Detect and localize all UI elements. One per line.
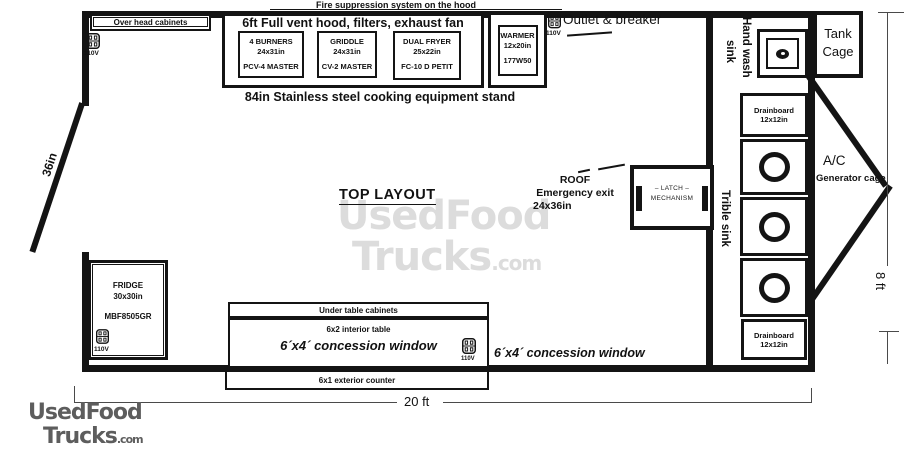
watermark-corner-line1: UsedFood xyxy=(28,400,142,425)
drain-icon xyxy=(759,212,790,242)
roof-exit-line3: 24x36in xyxy=(533,200,617,213)
outlet-110v-icon xyxy=(86,33,100,49)
interior-table-label: 6x2 interior table xyxy=(230,325,487,334)
latch-bar-left xyxy=(636,186,642,211)
tank-cage-box: Tank Cage xyxy=(813,11,863,78)
watermark-corner-suffix: .com xyxy=(117,433,143,446)
roof-exit-line1: ROOF xyxy=(533,174,617,187)
exterior-counter-box: 6x1 exterior counter xyxy=(225,370,489,390)
exterior-counter-label: 6x1 exterior counter xyxy=(319,376,395,385)
overhead-cabinets: Over head cabinets xyxy=(90,14,211,31)
roof-exit-note: ROOF Emergency exit 24x36in xyxy=(533,174,617,213)
under-table-cabinets: Under table cabinets xyxy=(228,302,489,318)
drainboard-size: 12x12in xyxy=(760,340,788,349)
breaker-leader-line xyxy=(567,31,612,36)
width-dim-tick-right xyxy=(811,388,812,403)
latch-bar-right xyxy=(702,186,708,211)
concession-window-exterior-label: 6´x4´ concession window xyxy=(494,346,645,360)
drainboard-name: Drainboard xyxy=(754,106,794,115)
watermark-corner-trucks: Trucks xyxy=(43,424,117,449)
latch-label-line1: – LATCH – xyxy=(634,184,710,194)
height-dim-line-upper xyxy=(887,13,888,266)
equipment-model: CV-2 MASTER xyxy=(319,62,375,72)
height-dim-tick-top xyxy=(878,12,904,13)
watermark-corner-line2: Trucks.com xyxy=(43,424,143,449)
tank-cage-label: Tank Cage xyxy=(817,15,859,60)
equipment-model: FC-10 D PETIT xyxy=(395,62,459,72)
watermark-center-trucks: Trucks xyxy=(352,234,491,280)
vent-hood-box: 6ft Full vent hood, filters, exhaust fan… xyxy=(222,13,484,88)
height-dim-line-lower xyxy=(887,332,888,364)
under-table-cabinets-label: Under table cabinets xyxy=(319,306,398,315)
height-dim-tick-bottom xyxy=(879,331,899,332)
fridge-model: MBF8505GR xyxy=(91,311,165,322)
roof-exit-leader-dash-2 xyxy=(598,164,625,171)
height-dim-label: 8 ft xyxy=(873,272,888,290)
sink-basin-2 xyxy=(740,197,808,256)
warmer-model: 177W50 xyxy=(500,56,536,66)
width-dim-line-right xyxy=(443,402,812,403)
triple-sink-label: Trible sink xyxy=(719,190,731,247)
equipment-griddle: GRIDDLE 24x31in CV-2 MASTER xyxy=(317,31,377,78)
interior-table-box: 6x2 interior table 6´x4´ concession wind… xyxy=(228,318,489,368)
equipment-model: PCV-4 MASTER xyxy=(240,62,302,72)
warmer-box: WARMER 12x20in 177W50 xyxy=(488,12,547,88)
page-title: TOP LAYOUT xyxy=(339,187,436,205)
fridge-name: FRIDGE xyxy=(91,280,165,291)
fridge-outlet-icon xyxy=(96,329,109,344)
wall-door-diagonal xyxy=(29,102,85,253)
fire-suppression-leader-line xyxy=(270,9,562,10)
equipment-name: 4 BURNERS xyxy=(249,37,292,46)
drainboard-bottom-box: Drainboard 12x12in xyxy=(741,319,807,360)
roof-hatch-box: – LATCH – MECHANISM xyxy=(630,165,714,230)
width-dim-label: 20 ft xyxy=(404,394,429,409)
drainboard-name: Drainboard xyxy=(754,331,794,340)
sink-basin-3 xyxy=(740,258,808,317)
concession-window-label: 6´x4´ concession window xyxy=(230,338,487,353)
floor-plan-canvas: UsedFood Trucks.com Fire suppression sys… xyxy=(0,0,908,470)
table-voltage-label: 110V xyxy=(461,356,475,362)
equipment-name: GRIDDLE xyxy=(330,37,364,46)
hand-wash-sink-label-line1: Hand wash xyxy=(740,17,752,78)
equipment-name: DUAL FRYER xyxy=(403,37,451,46)
latch-label-line2: MECHANISM xyxy=(634,194,710,204)
equipment-stand-label: 84in Stainless steel cooking equipment s… xyxy=(240,90,520,104)
fridge-box: FRIDGE 30x30in MBF8505GR 110V xyxy=(88,260,168,360)
watermark-center-line2: Trucks.com xyxy=(352,234,541,280)
sink-basin-1 xyxy=(740,139,808,195)
generator-cage-label: Generator cage xyxy=(816,173,886,184)
table-outlet-icon xyxy=(462,338,476,354)
roof-exit-leader-dash-1 xyxy=(578,169,590,173)
outlet-breaker-label: Outlet & breaker xyxy=(563,12,661,27)
drainboard-top-box: Drainboard 12x12in xyxy=(740,93,808,137)
ac-label: A/C xyxy=(823,153,846,168)
vent-hood-title: 6ft Full vent hood, filters, exhaust fan xyxy=(225,16,481,30)
fridge-voltage-label: 110V xyxy=(94,346,109,353)
breaker-outlet-icon xyxy=(548,13,561,29)
hand-wash-sink-label-line2: sink xyxy=(724,40,736,63)
outlet-voltage-label: 110V xyxy=(84,50,99,57)
breaker-voltage-label: 110V xyxy=(546,30,561,37)
equipment-burners: 4 BURNERS 24x31in PCV-4 MASTER xyxy=(238,31,304,78)
equipment-size: 24x31in xyxy=(333,47,361,56)
equipment-size: 25x22in xyxy=(413,47,441,56)
drainboard-size: 12x12in xyxy=(760,115,788,124)
equipment-fryer: DUAL FRYER 25x22in FC-10 D PETIT xyxy=(393,31,461,80)
wall-left-upper xyxy=(82,11,89,106)
tongue-wall-top xyxy=(805,73,888,188)
hand-wash-sink-box xyxy=(757,29,808,78)
warmer-name: WARMER xyxy=(500,31,534,40)
equipment-size: 24x31in xyxy=(257,47,285,56)
drain-icon xyxy=(776,49,789,59)
watermark-center-suffix: .com xyxy=(491,251,541,275)
warmer-inner-box: WARMER 12x20in 177W50 xyxy=(498,25,538,76)
drain-icon xyxy=(759,152,790,182)
warmer-size: 12x20in xyxy=(504,41,532,50)
drain-icon xyxy=(759,273,790,303)
roof-exit-line2: Emergency exit xyxy=(533,187,617,200)
fridge-size: 30x30in xyxy=(91,291,165,302)
overhead-cabinets-label: Over head cabinets xyxy=(114,18,188,27)
